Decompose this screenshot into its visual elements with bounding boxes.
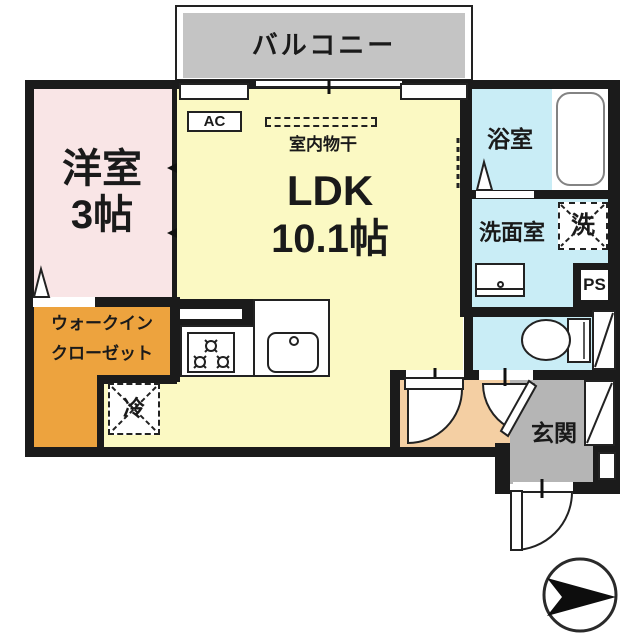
- north-arrow-icon: [544, 559, 616, 631]
- western-room-label: 洋室 3帖: [32, 146, 172, 238]
- walk-in-closet-line2: クローゼット: [32, 339, 172, 369]
- western-room-name: 洋室: [32, 146, 172, 192]
- ldk-door-leaf: [404, 377, 464, 390]
- washing-machine-label: 洗: [558, 212, 608, 241]
- toilet-icon: [522, 319, 590, 362]
- entrance-label: 玄関: [512, 420, 596, 448]
- ldk-name: LDK: [190, 166, 470, 216]
- shoe-cabinet-upper-diagonal: [595, 313, 613, 367]
- washroom-label: 洗面室: [464, 220, 560, 246]
- closet-folding-door-icon: [34, 269, 49, 297]
- walk-in-closet-line1: ウォークイン: [32, 309, 172, 339]
- sink-faucet-icon: [290, 337, 298, 345]
- bath-folding-door-icon: [477, 162, 492, 190]
- floorplan-canvas: バルコニー PS AC: [0, 0, 640, 640]
- stove-burners-icon: [194, 340, 229, 368]
- ldk-size: 10.1帖: [190, 216, 470, 263]
- bathroom-label: 浴室: [468, 126, 552, 154]
- indoor-drying-label: 室内物干: [252, 135, 394, 155]
- refrigerator-label: 冷: [108, 396, 160, 422]
- western-room-size: 3帖: [32, 192, 172, 238]
- ldk-label: LDK 10.1帖: [190, 166, 470, 263]
- ldk-door-arc: [408, 389, 462, 443]
- walk-in-closet-label: ウォークイン クローゼット: [32, 309, 172, 369]
- entrance-door-leaf: [510, 490, 523, 551]
